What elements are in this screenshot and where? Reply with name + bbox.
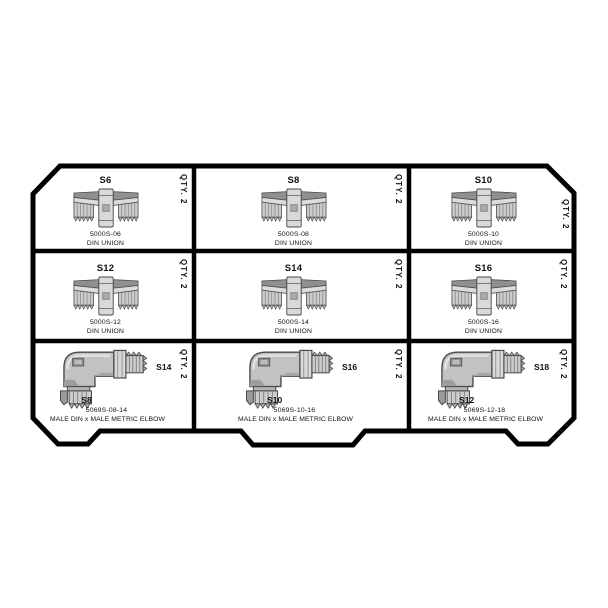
description: DIN UNION xyxy=(87,328,124,336)
part-number: 5069S-12-18 xyxy=(412,407,557,414)
cell-r3c2: S16 S10 5069S-10-16 MALE DIN x MALE METR… xyxy=(197,344,406,428)
din-union-fitting-icon xyxy=(70,275,142,317)
quantity-label: QTY. 2 xyxy=(179,259,188,289)
metric-size-label: S16 xyxy=(342,362,357,372)
size-label: S8 xyxy=(287,175,299,186)
part-number: 5069S-08-14 xyxy=(36,407,177,414)
size-label: S10 xyxy=(475,175,493,186)
cell-r2c1: S12 5000S-12 DIN UNION QTY. 2 xyxy=(36,254,191,338)
part-number: 5000S-16 xyxy=(468,319,499,327)
elbow-fitting-block: S18 S12 xyxy=(433,347,537,409)
part-number: 5000S-06 xyxy=(90,231,121,239)
size-label: S16 xyxy=(475,263,493,274)
din-union-fitting-icon xyxy=(448,187,520,229)
quantity-label: QTY. 2 xyxy=(559,349,568,379)
quantity-label: QTY. 2 xyxy=(179,349,188,379)
din-union-fitting-icon xyxy=(258,275,330,317)
quantity-label: QTY. 2 xyxy=(559,259,568,289)
cell-r2c3: S16 5000S-16 DIN UNION QTY. 2 xyxy=(412,254,571,338)
din-union-fitting-icon xyxy=(448,275,520,317)
size-label: S12 xyxy=(97,263,115,274)
description: MALE DIN x MALE METRIC ELBOW xyxy=(195,416,396,423)
din-size-label: S10 xyxy=(267,395,282,405)
elbow-fitting-icon xyxy=(241,347,345,409)
elbow-fitting-block: S14 S8 xyxy=(55,347,159,409)
part-number: 5000S-14 xyxy=(278,319,309,327)
description: DIN UNION xyxy=(465,328,502,336)
cell-r3c1: S14 S8 5069S-08-14 MALE DIN x MALE METRI… xyxy=(36,344,191,428)
quantity-label: QTY. 2 xyxy=(394,259,403,289)
part-number: 5000S-12 xyxy=(90,319,121,327)
size-label: S6 xyxy=(99,175,111,186)
elbow-fitting-icon xyxy=(55,347,159,409)
cell-r1c1: S6 5000S-06 DIN UNION QTY. 2 xyxy=(36,169,191,248)
cell-r1c3: S10 5000S-10 DIN UNION QTY. 2 xyxy=(412,169,571,248)
quantity-label: QTY. 2 xyxy=(394,174,403,204)
cell-r3c3: S18 S12 5069S-12-18 MALE DIN x MALE METR… xyxy=(412,344,571,428)
description: DIN UNION xyxy=(465,240,502,248)
quantity-label: QTY. 2 xyxy=(394,349,403,379)
elbow-fitting-block: S16 S10 xyxy=(241,347,345,409)
metric-size-label: S14 xyxy=(156,362,171,372)
quantity-label: QTY. 2 xyxy=(561,199,570,229)
din-union-fitting-icon xyxy=(258,187,330,229)
description: MALE DIN x MALE METRIC ELBOW xyxy=(410,416,561,423)
part-number: 5000S-08 xyxy=(278,231,309,239)
size-label: S14 xyxy=(285,263,303,274)
description: DIN UNION xyxy=(275,240,312,248)
elbow-fitting-icon xyxy=(433,347,537,409)
cell-r2c2: S14 5000S-14 DIN UNION QTY. 2 xyxy=(197,254,406,338)
cell-r1c2: S8 5000S-08 DIN UNION QTY. 2 xyxy=(197,169,406,248)
din-size-label: S12 xyxy=(459,395,474,405)
tray-diagram: S6 5000S-06 DIN UNION QTY. 2 S8 5000S-08… xyxy=(0,0,608,608)
description: DIN UNION xyxy=(87,240,124,248)
din-union-fitting-icon xyxy=(70,187,142,229)
metric-size-label: S18 xyxy=(534,362,549,372)
part-number: 5000S-10 xyxy=(468,231,499,239)
part-number: 5069S-10-16 xyxy=(197,407,392,414)
din-size-label: S8 xyxy=(81,395,91,405)
description: DIN UNION xyxy=(275,328,312,336)
description: MALE DIN x MALE METRIC ELBOW xyxy=(34,416,181,423)
quantity-label: QTY. 2 xyxy=(179,174,188,204)
